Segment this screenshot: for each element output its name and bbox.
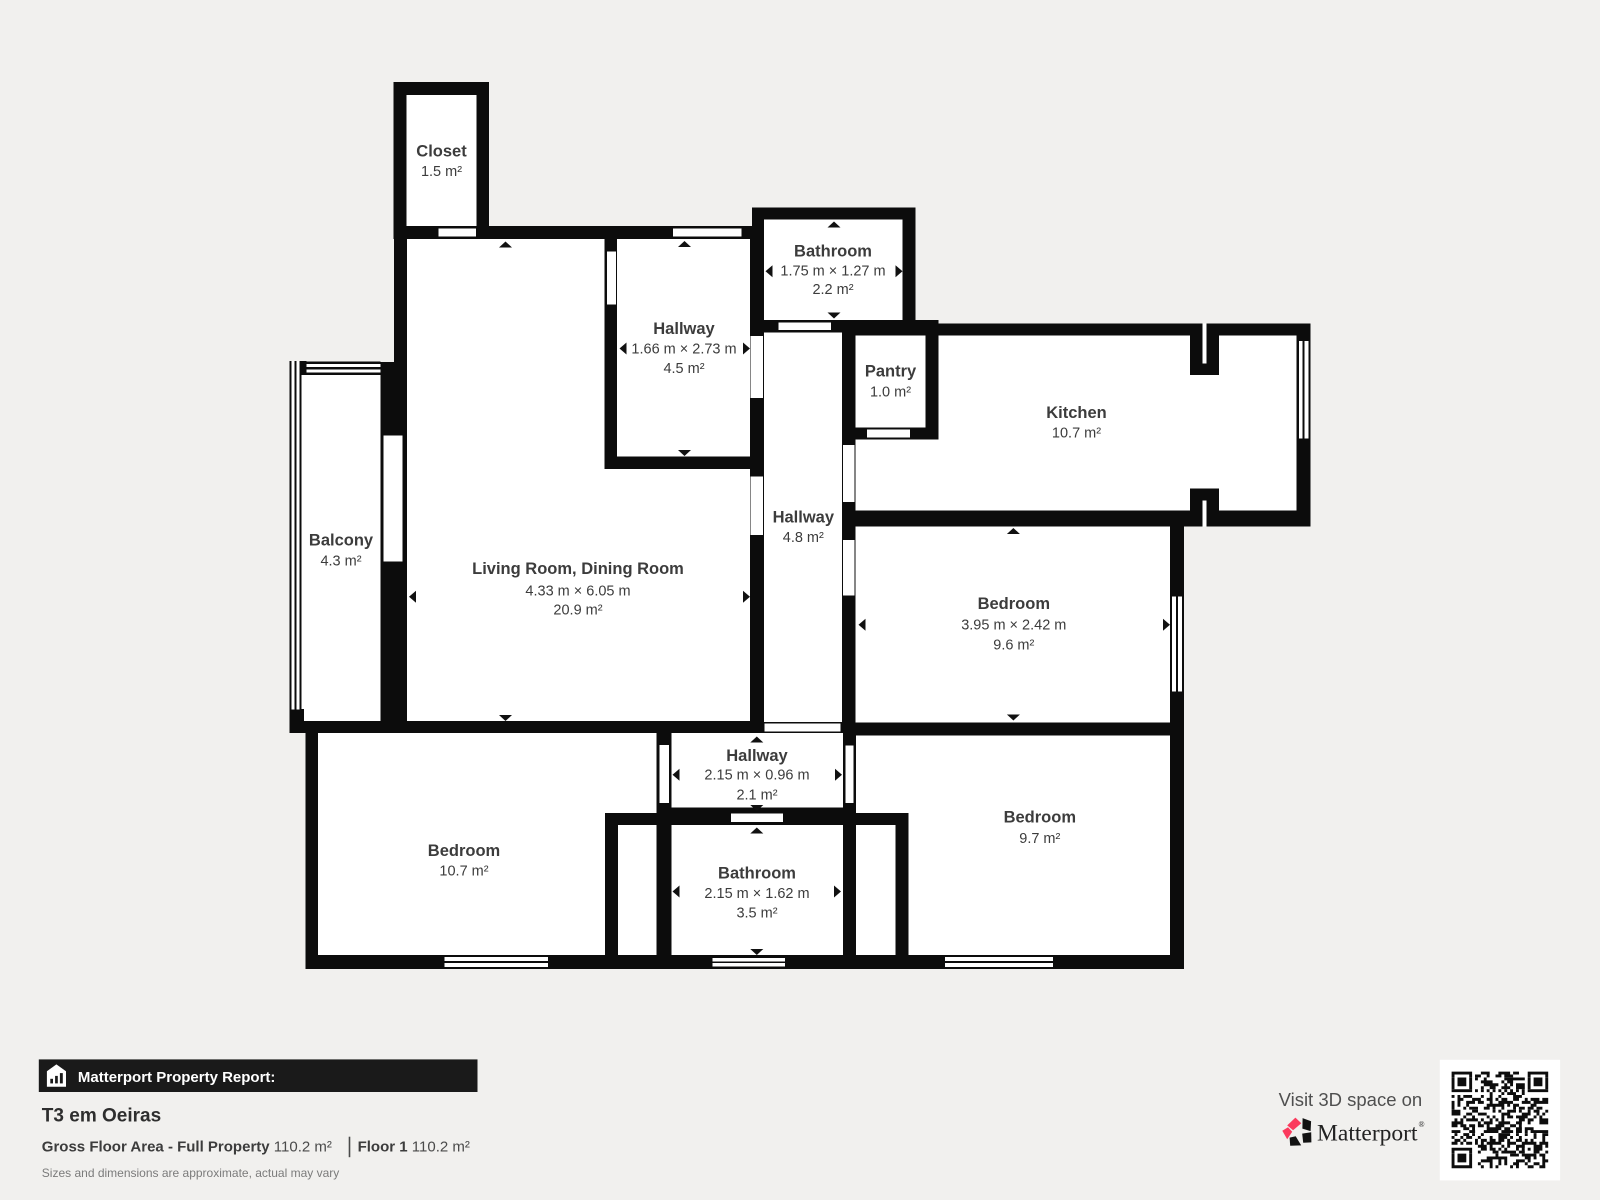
svg-text:2.1 m²: 2.1 m² [736,787,777,803]
svg-text:Bathroom: Bathroom [718,865,796,883]
svg-text:3.5 m²: 3.5 m² [736,906,777,922]
svg-text:2.2 m²: 2.2 m² [812,282,853,298]
svg-text:9.6 m²: 9.6 m² [993,638,1034,654]
svg-text:2.15 m × 0.96 m: 2.15 m × 0.96 m [704,768,809,784]
svg-text:Hallway: Hallway [726,747,788,765]
svg-text:Balcony: Balcony [309,532,374,550]
svg-text:Bedroom: Bedroom [1004,809,1076,827]
svg-text:4.3 m²: 4.3 m² [320,554,361,570]
svg-text:®: ® [1419,1120,1425,1129]
svg-text:T3 em Oeiras: T3 em Oeiras [42,1105,161,1126]
svg-text:Bedroom: Bedroom [978,595,1050,613]
svg-text:Living Room, Dining Room: Living Room, Dining Room [472,560,684,578]
svg-text:Gross Floor Area - Full Proper: Gross Floor Area - Full Property 110.2 m… [42,1139,332,1156]
svg-text:4.33 m × 6.05 m: 4.33 m × 6.05 m [525,584,630,600]
svg-text:4.5 m²: 4.5 m² [663,361,704,377]
svg-text:Sizes and dimensions are appro: Sizes and dimensions are approximate, ac… [42,1166,339,1180]
svg-text:9.7 m²: 9.7 m² [1019,831,1060,847]
svg-text:3.95 m × 2.42 m: 3.95 m × 2.42 m [961,618,1066,634]
svg-text:Matterport: Matterport [1317,1121,1418,1147]
svg-text:Closet: Closet [416,143,467,161]
svg-text:Kitchen: Kitchen [1046,404,1107,422]
svg-text:Hallway: Hallway [773,509,835,527]
svg-text:Floor 1 110.2 m²: Floor 1 110.2 m² [358,1139,470,1156]
svg-text:1.75 m × 1.27 m: 1.75 m × 1.27 m [780,263,885,279]
svg-text:1.5 m²: 1.5 m² [421,164,462,180]
svg-text:Matterport Property Report:: Matterport Property Report: [78,1069,276,1086]
svg-text:Pantry: Pantry [865,363,917,381]
svg-text:10.7 m²: 10.7 m² [1052,426,1101,442]
svg-text:1.66 m × 2.73 m: 1.66 m × 2.73 m [631,342,736,358]
svg-text:Visit 3D space on: Visit 3D space on [1279,1089,1423,1110]
svg-text:10.7 m²: 10.7 m² [439,864,488,880]
svg-text:Bedroom: Bedroom [428,842,500,860]
svg-text:20.9 m²: 20.9 m² [553,603,602,619]
svg-text:Hallway: Hallway [653,320,715,338]
svg-text:Bathroom: Bathroom [794,242,872,260]
svg-text:2.15 m × 1.62 m: 2.15 m × 1.62 m [704,886,809,902]
svg-text:4.8 m²: 4.8 m² [783,530,824,546]
svg-text:1.0 m²: 1.0 m² [870,385,911,401]
